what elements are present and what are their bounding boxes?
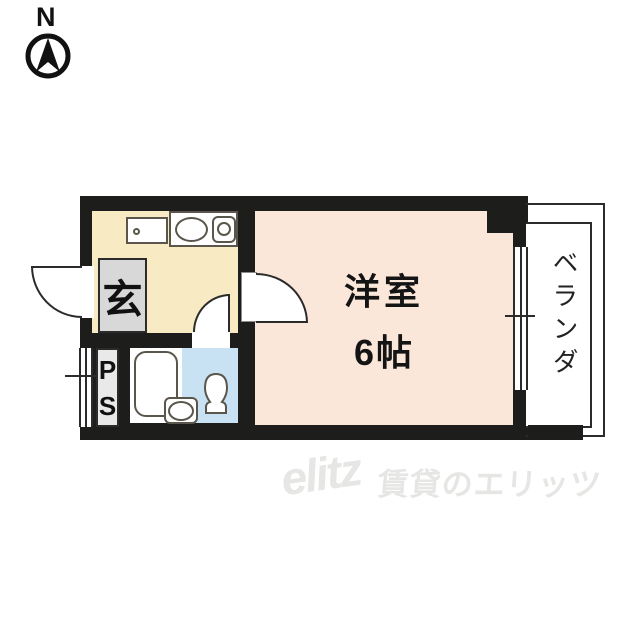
- watermark-text: 賃貸のエリッツ: [376, 459, 603, 504]
- entrance-door-icon: [31, 266, 82, 318]
- balcony-window-icon: [513, 247, 528, 390]
- window-tick: [65, 375, 97, 377]
- room-name: 洋室: [284, 263, 484, 315]
- wall-segment: [487, 211, 515, 233]
- wall-segment: [528, 425, 583, 440]
- washbasin-bowl-icon: [168, 401, 194, 421]
- window-tick: [505, 315, 535, 317]
- kitchen-unit-icon: [169, 211, 238, 247]
- room-size: 6帖: [284, 324, 484, 376]
- entrance-label: 玄: [103, 267, 143, 325]
- kitchen-counter-icon: [126, 217, 168, 244]
- floor-plan-page: N ベランダ 洋室 6帖 玄 P S: [0, 0, 640, 640]
- side-window-icon: [79, 348, 93, 427]
- pipe-space-label-s: S: [99, 388, 116, 424]
- pipe-space: P S: [96, 348, 119, 427]
- burner-icon: [217, 222, 231, 236]
- room-label: 洋室 6帖: [284, 263, 484, 376]
- balcony-label: ベランダ: [546, 249, 583, 381]
- toilet-icon: [200, 365, 232, 414]
- faucet-icon: [133, 228, 140, 235]
- room-door-leaf: [241, 272, 257, 322]
- north-label: N: [36, 2, 56, 33]
- watermark-logo: elitz: [278, 442, 364, 507]
- entrance-area: 玄: [98, 258, 147, 333]
- pipe-space-label-p: P: [99, 352, 116, 388]
- kitchen-sink-icon: [175, 217, 208, 242]
- compass-icon: [24, 32, 72, 80]
- stove-icon: [212, 216, 236, 243]
- bath-door-opening: [192, 332, 230, 348]
